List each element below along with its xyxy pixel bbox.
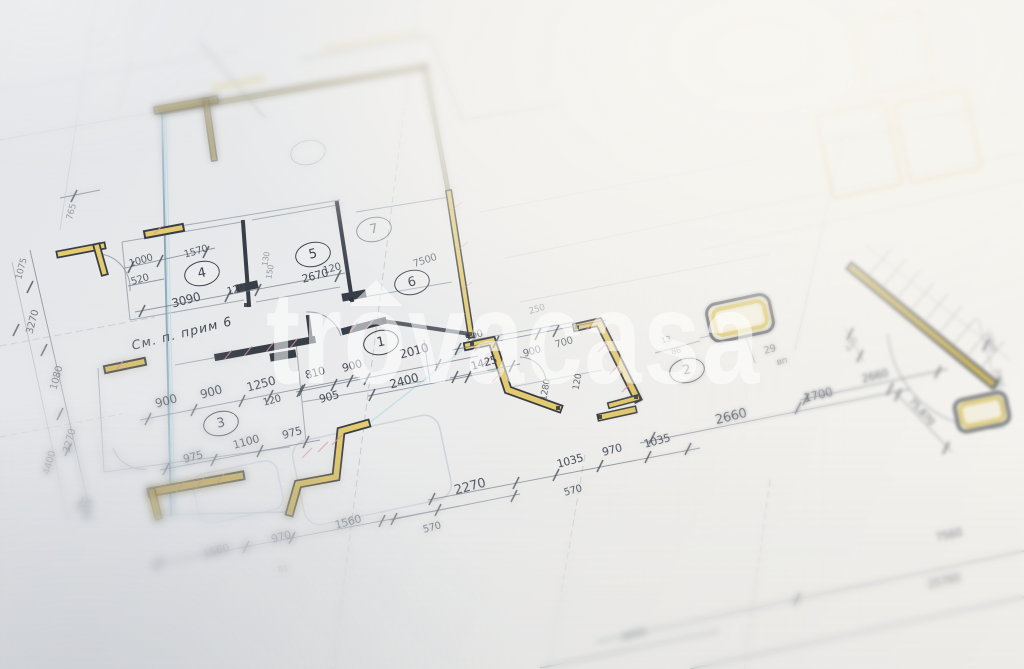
watermark-text-post: vacasa bbox=[408, 264, 761, 411]
dimension-label: 1000 bbox=[128, 252, 154, 269]
dimension-label: 3270 bbox=[62, 428, 79, 454]
dimension-label: 2660 bbox=[860, 366, 889, 385]
dimension-label: 83 bbox=[277, 563, 289, 574]
dimension-label: 120 bbox=[226, 282, 246, 297]
dimension-label: 1035 bbox=[642, 431, 671, 450]
dimension-label: 1075 bbox=[14, 257, 29, 281]
dimension-label: 1570 bbox=[183, 243, 209, 260]
trovacasa-watermark: trovacasa bbox=[266, 272, 761, 404]
dimension-label: 3090 bbox=[170, 289, 202, 310]
dimension-label: 2020 bbox=[993, 368, 1006, 389]
dimension-label: 900 bbox=[199, 382, 224, 401]
dimension-label: 1100 bbox=[231, 432, 260, 451]
watermark-text-pre: tr bbox=[266, 264, 343, 411]
dimension-label: 3270 bbox=[25, 309, 42, 335]
dimension-label: 1075 bbox=[80, 498, 95, 522]
dimension-label: 1700 bbox=[802, 385, 834, 406]
house-roof-icon bbox=[349, 280, 402, 306]
room-number-badge: 7 bbox=[354, 214, 394, 246]
dimension-label: 975 bbox=[182, 448, 205, 466]
dimension-label: 765 bbox=[65, 203, 79, 221]
dimension-label: 970 bbox=[601, 441, 624, 459]
room-number-badge: 4 bbox=[182, 258, 222, 290]
dimension-label: 570 bbox=[563, 483, 583, 498]
dimension-label: 75,870 bbox=[906, 396, 936, 428]
blueprint-photo: 7651075327010803270440010751000157052030… bbox=[0, 0, 1024, 669]
dimension-label: 420 bbox=[843, 335, 861, 354]
room-number-badge: 3 bbox=[201, 408, 241, 440]
dimension-label: 2270 bbox=[453, 476, 488, 499]
dimension-label: 1560 bbox=[201, 541, 230, 560]
dimension-label: 29 bbox=[763, 343, 778, 357]
dimension-label: 6450 bbox=[621, 627, 647, 644]
dimension-label: 25760 bbox=[926, 571, 962, 591]
dimension-label: 1080 bbox=[49, 365, 66, 391]
dimension-label: вп bbox=[776, 356, 789, 368]
watermark-o: o bbox=[343, 272, 407, 404]
dimension-label: 4400 bbox=[42, 450, 59, 476]
dimension-label: 970 bbox=[270, 528, 293, 546]
dimension-label: 570 bbox=[422, 520, 442, 535]
dimension-label: 975 bbox=[281, 424, 304, 442]
dimension-label: 1035 bbox=[555, 451, 584, 470]
dimension-label: 900 bbox=[154, 391, 179, 410]
dimension-label: 1000 bbox=[985, 332, 998, 353]
dimension-label: 520 bbox=[130, 272, 151, 288]
room-number-badge bbox=[288, 137, 328, 169]
dimension-label: 1560 bbox=[333, 512, 362, 531]
plan-note: См. п. прим 6 bbox=[130, 313, 234, 353]
dimension-label: 7560 bbox=[934, 526, 963, 545]
